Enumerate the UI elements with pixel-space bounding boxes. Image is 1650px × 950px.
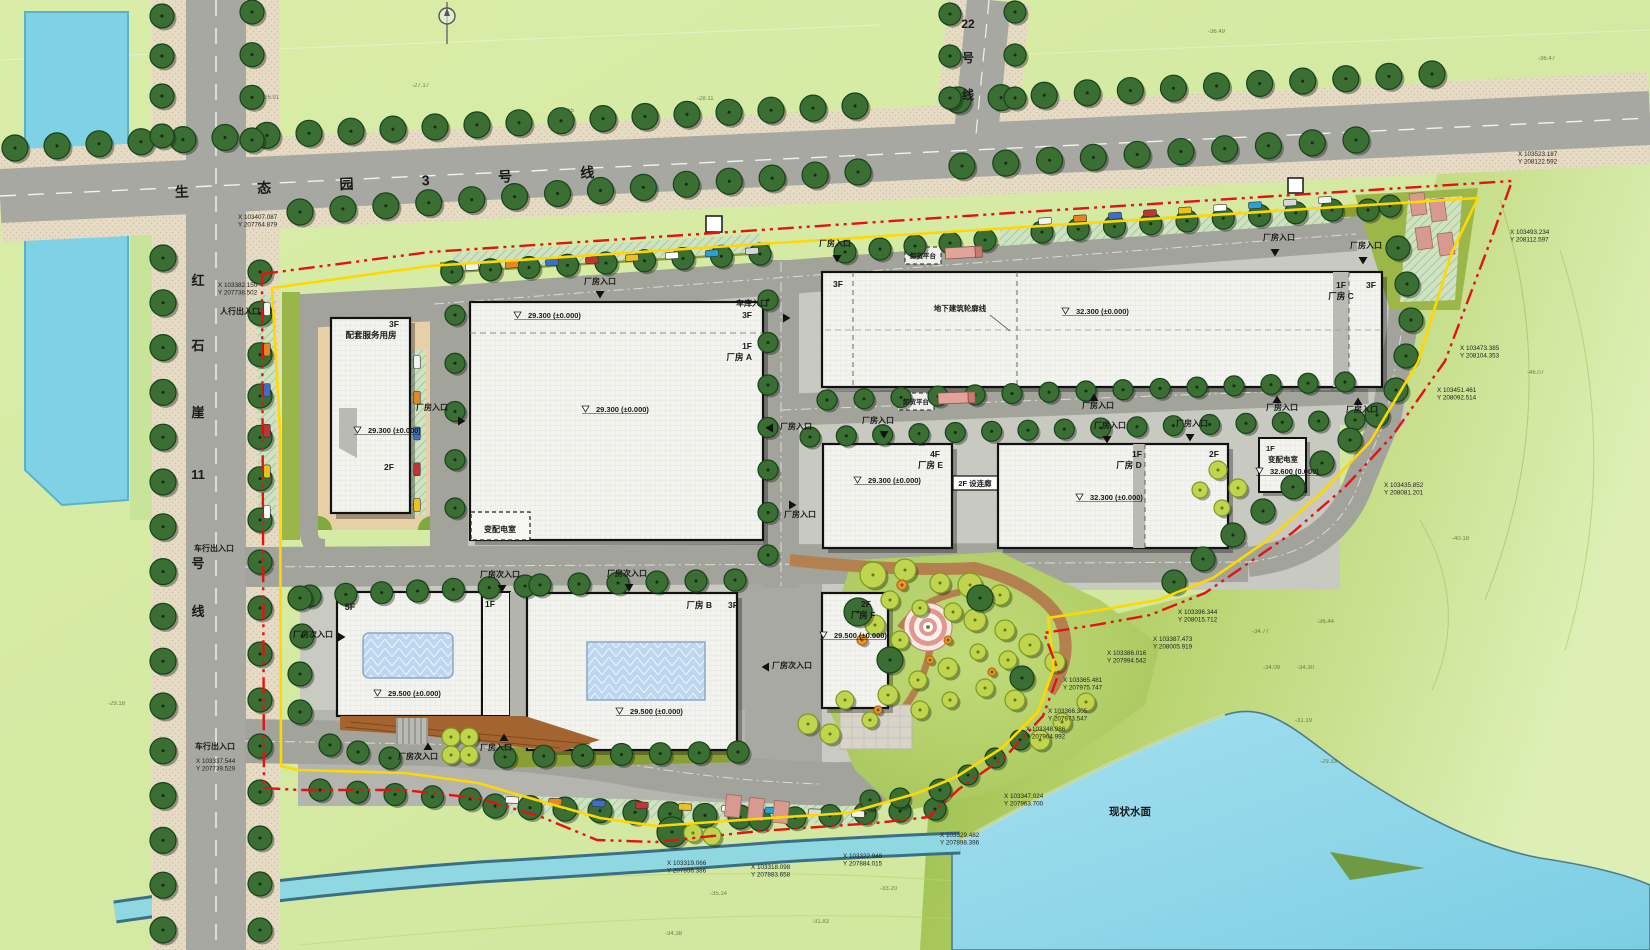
- svg-text:Y 208122.592: Y 208122.592: [1518, 159, 1558, 166]
- svg-text:X 103322.948: X 103322.948: [843, 853, 883, 860]
- car-icon: [1073, 215, 1086, 222]
- svg-text:厂房入口: 厂房入口: [1266, 402, 1298, 412]
- car-icon: [264, 465, 271, 478]
- coordinate-label: X 103523.187Y 208122.592: [1518, 151, 1558, 166]
- svg-text:3F: 3F: [1366, 280, 1376, 290]
- spot-elevation: -46.07: [1527, 370, 1545, 376]
- svg-text:X 103348.986: X 103348.986: [1026, 726, 1066, 733]
- svg-text:厂房入口: 厂房入口: [1346, 404, 1378, 414]
- svg-text:车库入口: 车库入口: [736, 298, 768, 308]
- svg-text:2F: 2F: [861, 599, 871, 609]
- svg-text:Y 208092.514: Y 208092.514: [1437, 395, 1477, 402]
- svg-text:2F 设连廊: 2F 设连廊: [958, 478, 992, 488]
- car-icon: [625, 254, 638, 261]
- car-icon: [1038, 217, 1051, 224]
- svg-text:Y 208081.201: Y 208081.201: [1384, 490, 1424, 497]
- b-skylight: [587, 642, 705, 700]
- svg-text:变配电室: 变配电室: [484, 524, 516, 534]
- svg-text:Y 207964.992: Y 207964.992: [1026, 734, 1066, 741]
- road-name-west-char: 崖: [191, 405, 204, 420]
- vehicle-entrance-label: 车行出入口: [194, 543, 234, 553]
- svg-text:Y 207883.658: Y 207883.658: [751, 872, 791, 879]
- svg-text:1F: 1F: [1266, 444, 1275, 453]
- svg-text:厂房入口: 厂房入口: [784, 509, 816, 519]
- car-icon: [414, 356, 421, 369]
- coordinate-label: X 103347.024Y 207963.700: [1004, 793, 1044, 808]
- car-icon: [1213, 204, 1226, 211]
- coordinate-label: X 103435.852Y 208081.201: [1384, 482, 1424, 497]
- svg-text:配套服务用房: 配套服务用房: [345, 330, 396, 340]
- svg-text:厂房次入口: 厂房次入口: [398, 751, 438, 761]
- svg-text:1F: 1F: [742, 341, 752, 351]
- svg-text:2F: 2F: [1209, 449, 1219, 459]
- parking-shelter: [772, 800, 789, 823]
- svg-text:X 103407.087: X 103407.087: [238, 214, 278, 221]
- spot-elevation: -34.38: [665, 931, 683, 937]
- svg-text:Y 207739.529: Y 207739.529: [196, 766, 236, 773]
- building-factory-a: [470, 302, 763, 540]
- svg-text:厂房次入口: 厂房次入口: [772, 660, 812, 670]
- svg-text:32.600 (0.000): 32.600 (0.000): [1270, 467, 1319, 476]
- svg-text:X 103473.385: X 103473.385: [1460, 345, 1500, 352]
- car-icon: [414, 463, 421, 476]
- road-name-west-char: 线: [191, 604, 204, 619]
- parking-shelter: [1415, 226, 1433, 250]
- svg-text:厂房入口: 厂房入口: [1094, 420, 1126, 430]
- svg-text:29.300 (±0.000): 29.300 (±0.000): [368, 426, 421, 435]
- coordinate-label: X 103329.482Y 207898.396: [940, 832, 980, 847]
- car-icon: [1143, 209, 1156, 216]
- svg-text:厂房入口: 厂房入口: [862, 415, 894, 425]
- svg-text:X 103318.098: X 103318.098: [751, 864, 791, 871]
- spot-elevation: -29.18: [108, 701, 126, 707]
- svg-text:厂房 D: 厂房 D: [1116, 460, 1142, 470]
- svg-text:厂房入口: 厂房入口: [1082, 400, 1114, 410]
- spot-elevation: -34.77: [1252, 629, 1270, 635]
- svg-text:厂房入口: 厂房入口: [416, 402, 448, 412]
- site-plan-canvas: 生 态 园 3 号 线 红石崖11号线 22号线 3F 配套服务用房 2F 3F…: [0, 0, 1650, 950]
- car-icon: [1108, 212, 1121, 219]
- svg-text:卸货平台: 卸货平台: [910, 251, 937, 260]
- coordinate-label: X 103366.305Y 207973.547: [1048, 708, 1088, 723]
- svg-text:厂房入口: 厂房入口: [1176, 418, 1208, 428]
- spot-elevation: -27.55: [557, 108, 575, 114]
- svg-text:29.500 (±0.000): 29.500 (±0.000): [630, 707, 683, 716]
- building-factory-c: [822, 272, 1382, 387]
- svg-text:29.500 (±0.000): 29.500 (±0.000): [388, 689, 441, 698]
- spot-elevation: -36.49: [1208, 29, 1226, 35]
- car-icon: [264, 343, 271, 356]
- svg-text:厂房入口: 厂房入口: [1350, 240, 1382, 250]
- road-name-west-char: 11: [191, 467, 205, 482]
- road-name-north-char: 线: [962, 87, 974, 102]
- coordinate-label: X 103348.986Y 207964.992: [1026, 726, 1066, 741]
- coordinate-label: X 103493.234Y 208112.597: [1510, 229, 1550, 244]
- tower-skylight: [363, 633, 453, 678]
- car-icon: [745, 247, 758, 254]
- car-icon: [585, 256, 598, 263]
- car-icon: [1283, 199, 1296, 206]
- svg-text:X 103366.305: X 103366.305: [1048, 708, 1088, 715]
- svg-text:29.300 (±0.000): 29.300 (±0.000): [528, 311, 581, 320]
- coordinate-label: X 103365.481Y 207975.747: [1063, 677, 1103, 692]
- svg-text:32.300 (±0.000): 32.300 (±0.000): [1090, 493, 1143, 502]
- svg-text:厂房次入口: 厂房次入口: [480, 569, 520, 579]
- coordinate-label: X 103319.066Y 207856.386: [667, 860, 707, 875]
- coordinate-label: X 103318.098Y 207883.658: [751, 864, 791, 879]
- spot-elevation: -31.19: [1295, 718, 1313, 724]
- svg-text:X 103329.482: X 103329.482: [940, 832, 980, 839]
- road-name-north-char: 号: [962, 50, 974, 65]
- svg-text:X 103337.544: X 103337.544: [196, 758, 236, 765]
- coordinate-label: X 103337.544Y 207739.529: [196, 758, 236, 773]
- svg-text:厂房 F: 厂房 F: [851, 610, 876, 620]
- svg-text:厂房 C: 厂房 C: [1328, 291, 1354, 301]
- truck: [938, 392, 975, 404]
- svg-text:车行出入口: 车行出入口: [194, 543, 234, 553]
- svg-text:厂房 E: 厂房 E: [918, 460, 943, 470]
- spot-elevation: -31.83: [812, 919, 830, 925]
- svg-text:厂房次入口: 厂房次入口: [293, 629, 333, 639]
- svg-text:厂房 B: 厂房 B: [686, 600, 712, 610]
- spot-elevation: -28.11: [697, 96, 714, 102]
- river-west: [25, 12, 128, 505]
- svg-text:Y 208015.712: Y 208015.712: [1178, 617, 1218, 624]
- road-name-west-char: 号: [191, 556, 204, 571]
- car-icon: [264, 506, 271, 519]
- svg-text:3F: 3F: [728, 600, 738, 610]
- svg-text:Y 207884.015: Y 207884.015: [843, 861, 883, 868]
- svg-text:3F: 3F: [833, 279, 843, 289]
- road-line22: [976, 0, 989, 134]
- car-icon: [705, 250, 718, 257]
- svg-text:X 103387.473: X 103387.473: [1153, 636, 1193, 643]
- coordinate-label: X 103396.344Y 208015.712: [1178, 609, 1218, 624]
- garage-ramp: [396, 718, 428, 744]
- svg-text:厂房入口: 厂房入口: [780, 421, 812, 431]
- svg-text:29.300 (±0.000): 29.300 (±0.000): [868, 476, 921, 485]
- svg-text:29.300 (±0.000): 29.300 (±0.000): [596, 405, 649, 414]
- svg-text:厂房入口: 厂房入口: [480, 742, 512, 752]
- svg-text:32.300 (±0.000): 32.300 (±0.000): [1076, 307, 1129, 316]
- car-icon: [264, 424, 271, 437]
- spot-elevation: -33.20: [880, 886, 898, 892]
- svg-text:X 103386.016: X 103386.016: [1107, 650, 1147, 657]
- coordinate-label: X 103386.016Y 207994.542: [1107, 650, 1147, 665]
- underground-outline-label: 地下建筑轮廓线: [934, 303, 987, 313]
- svg-text:1F: 1F: [1132, 449, 1142, 459]
- parking-shelter: [724, 794, 741, 817]
- svg-text:3F: 3F: [742, 310, 752, 320]
- water-label: 现状水面: [1109, 805, 1151, 818]
- svg-text:厂房 A: 厂房 A: [726, 352, 752, 362]
- svg-text:X 103451.461: X 103451.461: [1437, 387, 1477, 394]
- road-name-west-char: 石: [190, 338, 204, 353]
- svg-text:Y 207975.747: Y 207975.747: [1063, 685, 1103, 692]
- coordinate-label: X 103473.385Y 208104.353: [1460, 345, 1500, 360]
- spot-elevation: -36.44: [1317, 619, 1335, 625]
- car-icon: [678, 804, 691, 811]
- svg-text:29.500 (±0.000): 29.500 (±0.000): [834, 631, 887, 640]
- spot-elevation: -34.30: [1297, 665, 1315, 671]
- spot-elevation: -29.33: [1320, 759, 1338, 765]
- coordinate-label: X 103387.473Y 208005.919: [1153, 636, 1193, 651]
- svg-text:1F: 1F: [485, 599, 495, 609]
- svg-text:Y 207898.396: Y 207898.396: [940, 840, 980, 847]
- svg-text:X 103382.150: X 103382.150: [218, 282, 258, 289]
- parking-shelter: [1409, 192, 1427, 216]
- spot-elevation: -36.47: [1538, 56, 1556, 62]
- svg-text:厂房入口: 厂房入口: [819, 238, 851, 248]
- svg-text:5F: 5F: [345, 602, 356, 612]
- car-icon: [264, 303, 271, 316]
- svg-text:Y 207963.700: Y 207963.700: [1004, 801, 1044, 808]
- svg-text:X 103319.066: X 103319.066: [667, 860, 707, 867]
- car-icon: [1318, 196, 1331, 203]
- svg-text:Y 207738.502: Y 207738.502: [218, 290, 258, 297]
- svg-text:厂房次入口: 厂房次入口: [607, 568, 647, 578]
- svg-text:2F: 2F: [384, 462, 394, 472]
- spot-elevation: -27.17: [412, 83, 430, 89]
- gatehouse: [706, 216, 722, 232]
- svg-text:X 103365.481: X 103365.481: [1063, 677, 1103, 684]
- car-icon: [635, 802, 648, 809]
- car-icon: [665, 252, 678, 259]
- svg-text:Y 208112.597: Y 208112.597: [1510, 237, 1549, 244]
- spot-elevation: -40.18: [1452, 536, 1470, 542]
- coordinate-label: X 103382.150Y 207738.502: [218, 282, 258, 297]
- svg-text:X 103347.024: X 103347.024: [1004, 793, 1044, 800]
- svg-text:Y 207994.542: Y 207994.542: [1107, 658, 1147, 665]
- svg-text:车行出入口: 车行出入口: [195, 741, 235, 751]
- svg-text:Y 208104.353: Y 208104.353: [1460, 353, 1500, 360]
- svg-text:厂房入口: 厂房入口: [584, 276, 616, 286]
- coordinate-label: X 103322.948Y 207884.015: [843, 853, 883, 868]
- parking-shelter: [747, 797, 764, 820]
- svg-text:X 103493.234: X 103493.234: [1510, 229, 1550, 236]
- building-wing-1f: [482, 592, 510, 716]
- svg-text:Y 208005.919: Y 208005.919: [1153, 644, 1193, 651]
- svg-text:卸货平台: 卸货平台: [903, 397, 930, 406]
- road-name-west-char: 红: [191, 273, 204, 288]
- master-plan-drawing: 生 态 园 3 号 线 红石崖11号线 22号线 3F 配套服务用房 2F 3F…: [0, 0, 1650, 950]
- spot-elevation: -34.09: [1263, 665, 1281, 671]
- svg-text:X 103396.344: X 103396.344: [1178, 609, 1218, 616]
- svg-text:厂房入口: 厂房入口: [1263, 232, 1295, 242]
- svg-text:1F: 1F: [1336, 280, 1346, 290]
- svg-text:4F: 4F: [930, 449, 940, 459]
- svg-text:人行出入口: 人行出入口: [220, 306, 260, 316]
- coordinate-label: X 103451.461Y 208092.514: [1437, 387, 1477, 402]
- road-name-north-char: 22: [961, 17, 975, 31]
- car-icon: [545, 259, 558, 266]
- svg-text:Y 207856.386: Y 207856.386: [667, 868, 707, 875]
- gatehouse: [1288, 178, 1303, 193]
- svg-text:变配电室: 变配电室: [1268, 454, 1298, 464]
- car-icon: [505, 797, 518, 804]
- truck: [945, 246, 983, 259]
- spot-elevation: -26.91: [262, 95, 280, 101]
- car-icon: [1178, 207, 1191, 214]
- car-icon: [264, 384, 271, 397]
- pedestrian-entrance-label: 人行出入口: [220, 306, 260, 316]
- spot-elevation: -35.14: [710, 891, 728, 897]
- car-icon: [1248, 202, 1261, 209]
- car-icon: [592, 800, 605, 807]
- svg-text:Y 207973.547: Y 207973.547: [1048, 716, 1088, 723]
- svg-text:X 103435.852: X 103435.852: [1384, 482, 1424, 489]
- coordinate-label: X 103407.087Y 207764.879: [238, 214, 278, 229]
- svg-text:X 103523.187: X 103523.187: [1518, 151, 1558, 158]
- svg-text:3F: 3F: [389, 319, 399, 329]
- car-icon: [414, 499, 421, 512]
- vehicle-entrance-label: 车行出入口: [195, 741, 235, 751]
- svg-text:Y 207764.879: Y 207764.879: [238, 222, 278, 229]
